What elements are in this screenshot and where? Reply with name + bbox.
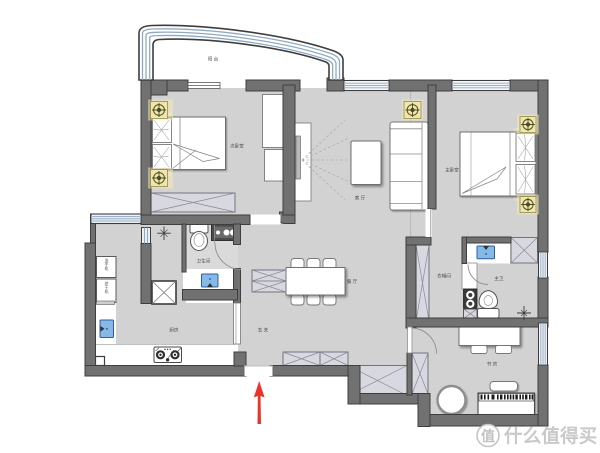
svg-text:主卧室: 主卧室: [445, 167, 459, 174]
svg-text:烘干机: 烘干机: [105, 281, 109, 294]
svg-text:卫生间: 卫生间: [197, 258, 211, 265]
svg-text:玄 关: 玄 关: [258, 327, 269, 334]
svg-text:洗手机: 洗手机: [105, 258, 109, 271]
svg-text:什么值得买: 什么值得买: [504, 426, 598, 447]
svg-text:阳 台: 阳 台: [208, 56, 219, 63]
svg-text:书 房: 书 房: [487, 361, 498, 368]
svg-text:衣帽间: 衣帽间: [437, 273, 451, 280]
svg-text:次卧室: 次卧室: [230, 143, 244, 150]
svg-text:客 厅: 客 厅: [355, 195, 366, 202]
svg-text:主卫: 主卫: [494, 275, 504, 281]
svg-text:餐 厅: 餐 厅: [347, 278, 358, 285]
svg-text:厨房: 厨房: [169, 327, 179, 334]
svg-text:值: 值: [481, 428, 495, 444]
